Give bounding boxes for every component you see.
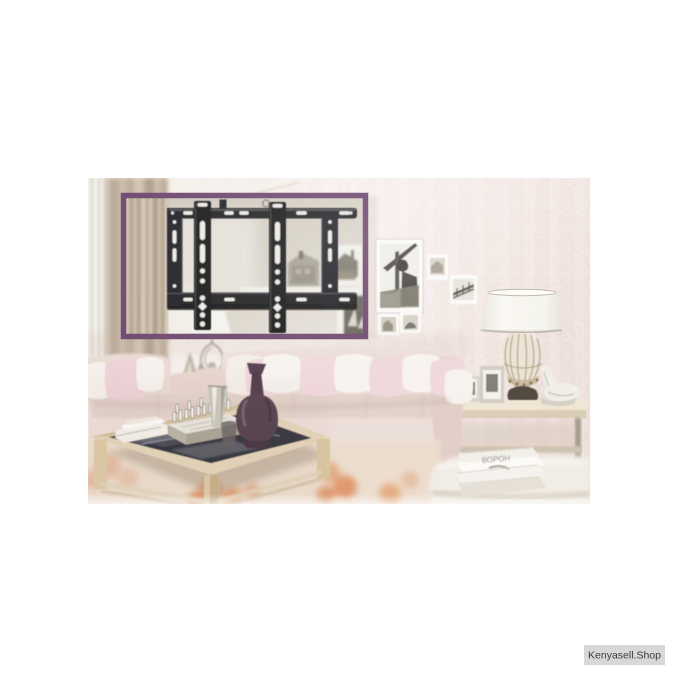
svg-text:Kenyasell.Shop: Kenyasell.Shop (588, 650, 661, 662)
